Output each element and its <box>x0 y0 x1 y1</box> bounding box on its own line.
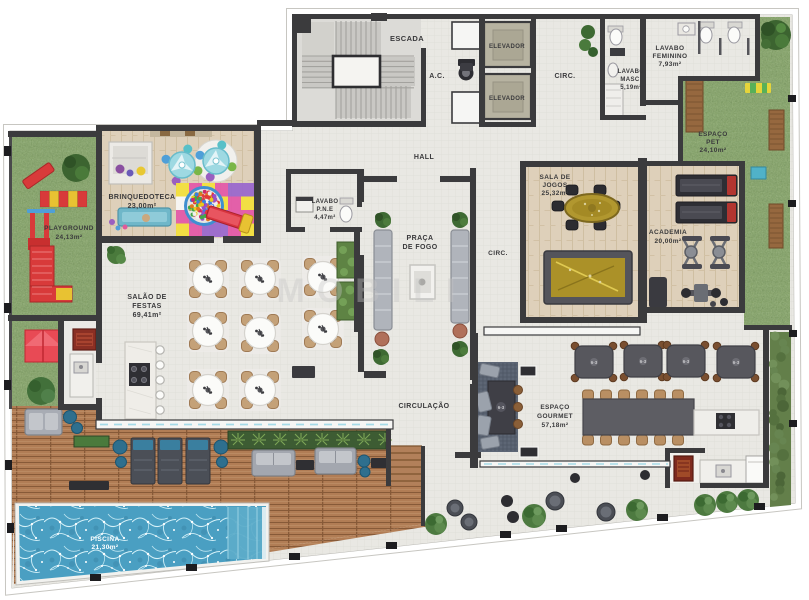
svg-text:ACADEMIA: ACADEMIA <box>649 229 687 236</box>
svg-text:GOURMET: GOURMET <box>537 413 573 420</box>
svg-text:SALÃO DE: SALÃO DE <box>127 292 166 301</box>
svg-text:SALA DE: SALA DE <box>539 174 570 181</box>
svg-text:BRINQUEDOTECA: BRINQUEDOTECA <box>108 194 175 201</box>
svg-text:24,10m²: 24,10m² <box>699 147 726 154</box>
svg-text:ESPAÇO: ESPAÇO <box>698 131 727 138</box>
svg-text:CIRCULAÇÃO: CIRCULAÇÃO <box>398 401 449 410</box>
svg-text:FEMININO: FEMININO <box>653 53 688 60</box>
svg-text:PLAYGROUND: PLAYGROUND <box>44 225 94 232</box>
svg-text:5,19m²: 5,19m² <box>620 84 641 91</box>
svg-text:PRAÇA: PRAÇA <box>407 235 434 242</box>
svg-text:LAVABO: LAVABO <box>312 199 339 205</box>
svg-text:6-3: 6-3 <box>683 359 690 364</box>
svg-text:JOGOS: JOGOS <box>542 182 567 189</box>
svg-text:MASC.: MASC. <box>620 77 641 83</box>
svg-text:DE FOGO: DE FOGO <box>402 244 437 251</box>
svg-text:LAVABO: LAVABO <box>656 45 685 52</box>
svg-text:6-3: 6-3 <box>498 405 505 410</box>
svg-text:ELEVADOR: ELEVADOR <box>489 96 525 102</box>
svg-text:69,41m²: 69,41m² <box>133 312 162 319</box>
svg-text:CIRC.: CIRC. <box>488 250 508 257</box>
svg-text:PISCINA: PISCINA <box>90 536 119 543</box>
svg-text:LAVABO: LAVABO <box>618 69 645 75</box>
svg-text:MOBILI: MOBILI <box>277 272 468 310</box>
svg-text:57,18m²: 57,18m² <box>541 422 568 429</box>
svg-text:6-3: 6-3 <box>640 359 647 364</box>
svg-text:PET: PET <box>706 139 720 146</box>
svg-text:6-3: 6-3 <box>591 360 598 365</box>
svg-text:23,00m²: 23,00m² <box>128 203 157 210</box>
svg-text:ESCADA: ESCADA <box>390 34 424 43</box>
svg-text:ELEVADOR: ELEVADOR <box>489 44 525 50</box>
svg-text:20,00m²: 20,00m² <box>654 238 681 245</box>
svg-text:FESTAS: FESTAS <box>132 303 162 310</box>
svg-text:ESPAÇO: ESPAÇO <box>540 404 569 411</box>
svg-text:A.C.: A.C. <box>429 73 445 80</box>
svg-text:HALL: HALL <box>414 154 435 161</box>
svg-text:24,13m²: 24,13m² <box>55 234 82 241</box>
svg-text:7,93m²: 7,93m² <box>659 61 682 68</box>
svg-text:P.N.E: P.N.E <box>317 207 334 213</box>
svg-text:25,32m²: 25,32m² <box>541 190 568 197</box>
svg-text:CIRC.: CIRC. <box>554 73 575 80</box>
svg-text:6-3: 6-3 <box>733 360 740 365</box>
svg-text:21,30m²: 21,30m² <box>91 544 118 551</box>
svg-text:4,47m²: 4,47m² <box>314 214 335 221</box>
